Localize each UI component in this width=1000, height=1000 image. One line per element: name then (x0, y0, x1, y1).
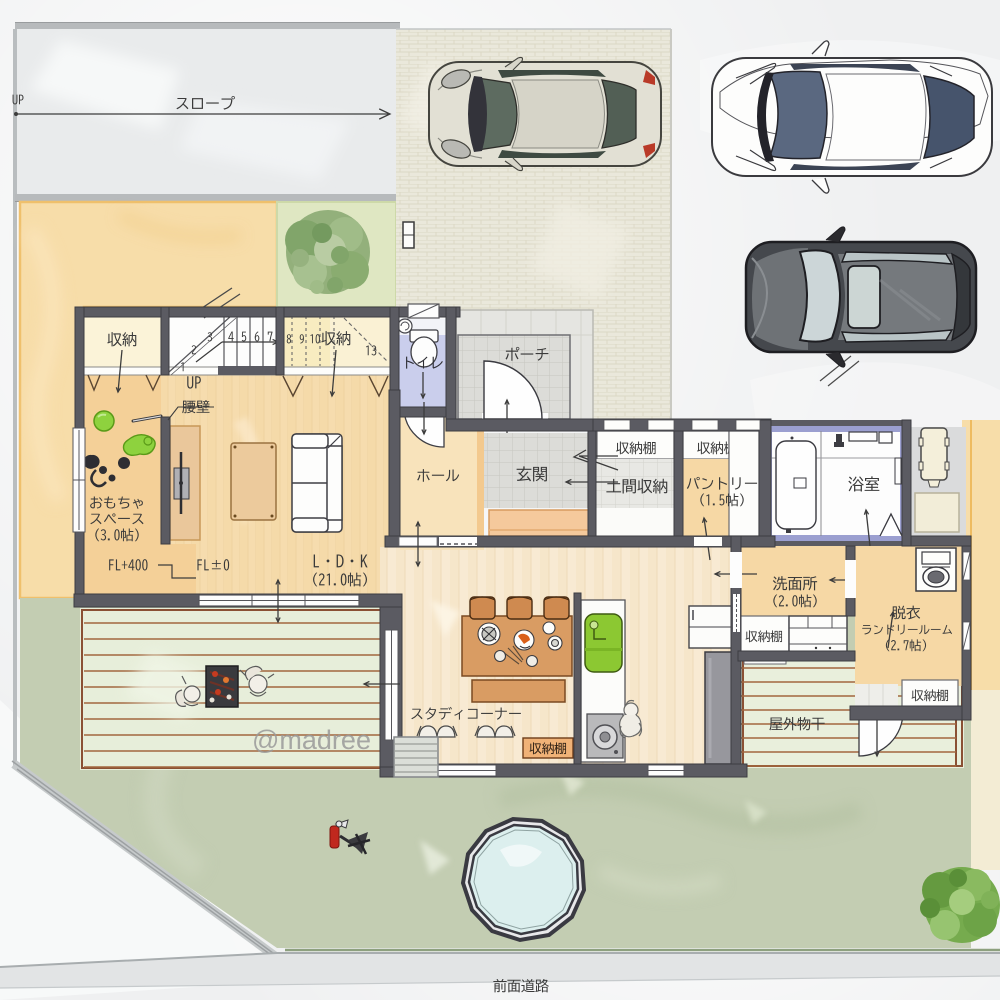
svg-text:@madree: @madree (252, 725, 371, 755)
